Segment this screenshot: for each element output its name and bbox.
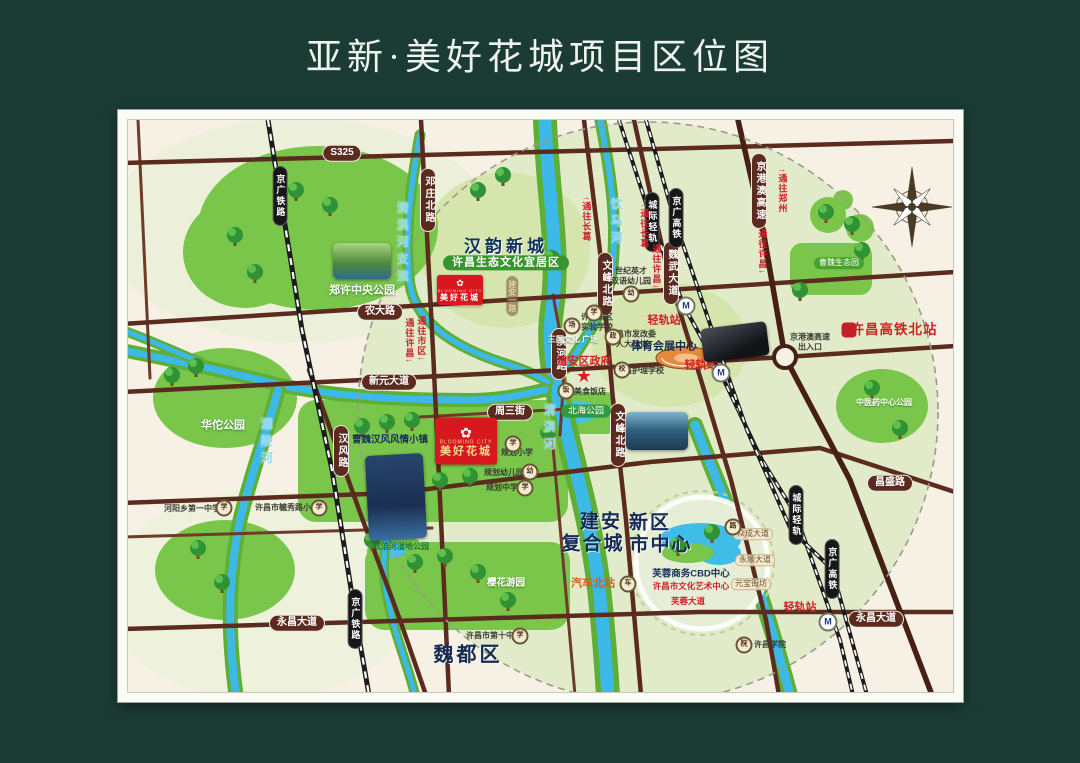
map-canvas (0, 0, 1080, 763)
stadium-icon (656, 347, 716, 369)
highway-interchange (774, 346, 796, 368)
